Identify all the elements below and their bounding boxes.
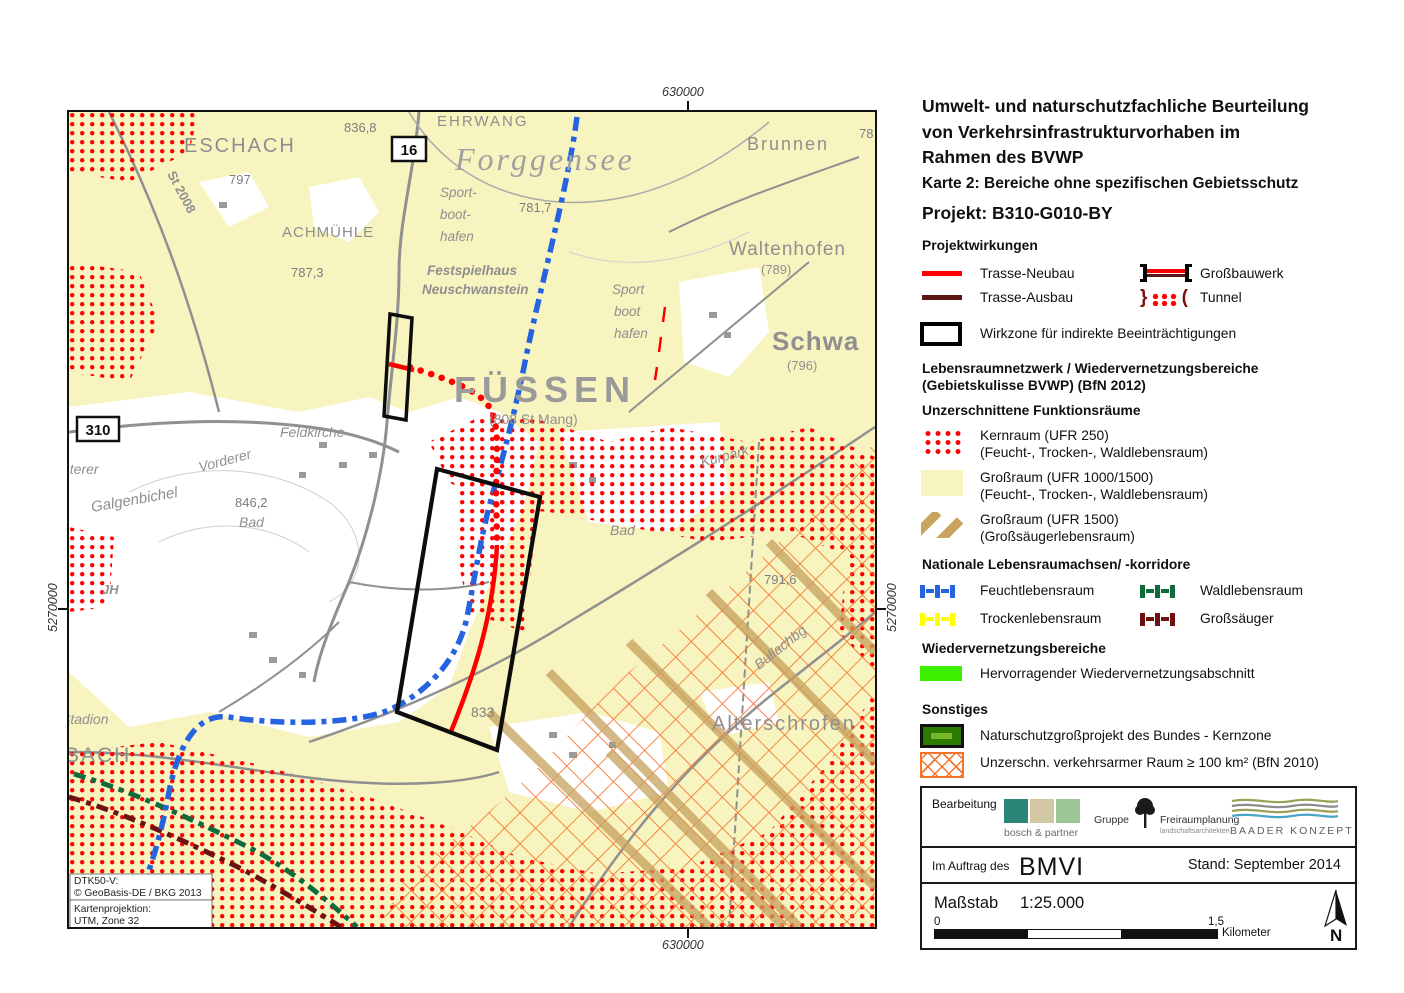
label-stadion: Stadion xyxy=(69,711,109,727)
auftrag-box: Im Auftrag des BMVI Stand: September 201… xyxy=(920,846,1357,884)
auftrag-label: Im Auftrag des xyxy=(932,859,1009,873)
label-ehrwang: EHRWANG xyxy=(437,113,529,130)
massstab-value: 1:25.000 xyxy=(1020,894,1084,913)
wald-axis-swatch xyxy=(1140,584,1186,598)
coordinate-left: 5270000 xyxy=(46,572,60,632)
tick-bottom xyxy=(687,929,689,938)
coordinate-top: 630000 xyxy=(662,85,704,99)
label-waltenhofen-elev: (789) xyxy=(761,262,791,277)
credit-line1: DTK50-V: xyxy=(74,876,118,887)
label-festspielhaus-1: Festspielhaus xyxy=(427,263,518,278)
map-canvas: 16 310 ESCHACH St 2008 797 836,8 EHRWANG… xyxy=(67,110,877,929)
bracket-left-icon xyxy=(1140,264,1147,282)
bosch-logo-text: bosch & partner xyxy=(1004,827,1078,839)
trasse-neubau-label: Trasse-Neubau xyxy=(980,266,1075,281)
bracket-right-icon xyxy=(1185,264,1192,282)
grosssaeuger-label: Großsäuger xyxy=(1200,611,1274,626)
grossraum-1000-label-1: Großraum (UFR 1000/1500) xyxy=(980,470,1153,485)
label-hinterer: nterer xyxy=(69,461,100,477)
heading-projektwirkungen: Projektwirkungen xyxy=(922,238,1038,253)
baader-waves-icon xyxy=(1230,796,1340,820)
label-alterschrofen: Alterschrofen xyxy=(712,713,856,735)
verkehrsarm-label: Unzerschn. verkehrsarmer Raum ≥ 100 km² … xyxy=(980,755,1319,770)
credit-line3: Kartenprojektion: xyxy=(74,904,151,915)
feucht-label: Feuchtlebensraum xyxy=(980,583,1094,598)
massstab-label: Maßstab xyxy=(934,894,998,913)
map-subtitle: Karte 2: Bereiche ohne spezifischen Gebi… xyxy=(922,175,1298,193)
label-eschach: ESCHACH xyxy=(184,135,296,157)
label-sport2-2: boot xyxy=(614,304,642,319)
wiedervernetzung-label: Hervorragender Wiedervernetzungsabschnit… xyxy=(980,666,1255,681)
road-shield-b310: 310 xyxy=(77,417,119,441)
label-sport1-3: hafen xyxy=(440,229,474,244)
coordinate-bottom: 630000 xyxy=(662,938,704,952)
road-shield-b310-label: 310 xyxy=(85,422,110,439)
title-line2: von Verkehrsinfrastrukturvorhaben im xyxy=(922,120,1372,146)
naturschutz-label: Naturschutzgroßprojekt des Bundes - Kern… xyxy=(980,728,1271,743)
credit-line2: © GeoBasis-DE / BKG 2013 xyxy=(74,888,202,899)
road-shield-b16-label: 16 xyxy=(401,142,418,159)
tunnel-bracket-left-icon: } xyxy=(1140,287,1147,309)
label-spot-78: 78 xyxy=(859,126,873,141)
auftrag-client: BMVI xyxy=(1019,853,1084,882)
stand-date: Stand: September 2014 xyxy=(1188,857,1341,873)
bearbeitung-box: Bearbeitung bosch & partner Gruppe Freir… xyxy=(920,786,1357,848)
bosch-logo-square2 xyxy=(1030,799,1054,823)
heading-sonstiges: Sonstiges xyxy=(922,702,988,717)
feucht-axis-swatch xyxy=(920,584,966,598)
kernraum-label-1: Kernraum (UFR 250) xyxy=(980,428,1109,443)
bearbeitung-label: Bearbeitung xyxy=(932,797,997,811)
document-title: Umwelt- und naturschutzfachliche Beurtei… xyxy=(922,94,1372,171)
grossraum-1500-swatch xyxy=(921,512,963,538)
bosch-logo-square3 xyxy=(1056,799,1080,823)
credit-line4: UTM, Zone 32 xyxy=(74,916,139,927)
label-festspielhaus-2: Neuschwanstein xyxy=(422,282,529,297)
coordinate-right: 5270000 xyxy=(885,572,899,632)
label-brunnen: Brunnen xyxy=(747,134,829,154)
kernraum-swatch xyxy=(921,428,963,454)
scale-bar xyxy=(934,929,1218,939)
north-arrow-icon xyxy=(1318,888,1354,930)
heading-wiedervernetzung: Wiedervernetzungsbereiche xyxy=(922,641,1106,656)
heading-achsen: Nationale Lebensraumachsen/ -korridore xyxy=(922,557,1190,572)
gruppe-logo-subtitle: landschaftsarchitekten xyxy=(1160,828,1230,835)
tunnel-swatch: } ( xyxy=(1140,290,1192,308)
label-bad2: Bad xyxy=(610,522,636,538)
wiedervernetzung-swatch xyxy=(920,666,962,681)
map-sheet: 16 310 ESCHACH St 2008 797 836,8 EHRWANG… xyxy=(0,0,1404,993)
grossraum-1500-label-2: (Großsäugerlebensraum) xyxy=(980,529,1135,544)
gruppe-logo-word2: Freiraumplanung xyxy=(1160,814,1239,826)
grossraum-1000-swatch xyxy=(921,470,963,496)
tree-icon xyxy=(1134,796,1156,830)
trocken-axis-swatch xyxy=(920,612,966,626)
grossbauwerk-swatch xyxy=(1140,264,1192,282)
grossraum-1500-label-1: Großraum (UFR 1500) xyxy=(980,512,1119,527)
label-spot-833: 833 xyxy=(471,704,495,720)
label-schwangau: Schwa xyxy=(772,326,859,356)
label-waltenhofen: Waltenhofen xyxy=(729,239,846,260)
label-jh: JH xyxy=(102,582,119,597)
title-line3: Rahmen des BVWP xyxy=(922,145,1372,171)
grossbauwerk-label: Großbauwerk xyxy=(1200,266,1284,281)
label-fuessen-sub: (808 St Mang) xyxy=(489,411,578,427)
label-spot-797: 797 xyxy=(229,172,251,187)
label-fuessen: FÜSSEN xyxy=(454,369,636,410)
label-sport1-2: boot- xyxy=(440,207,471,222)
naturschutz-swatch xyxy=(920,724,964,748)
wald-label: Waldlebensraum xyxy=(1200,583,1303,598)
kernraum-label-2: (Feucht-, Trocken-, Waldlebensraum) xyxy=(980,445,1208,460)
tick-top xyxy=(687,101,689,110)
trasse-ausbau-label: Trasse-Ausbau xyxy=(980,290,1073,305)
tunnel-dots-icon xyxy=(1150,293,1180,306)
label-spot-781-7: 781,7 xyxy=(519,200,552,215)
trocken-label: Trockenlebensraum xyxy=(980,611,1101,626)
label-sport2-1: Sport xyxy=(612,282,646,297)
tick-right xyxy=(877,608,886,610)
topographic-map: 16 310 ESCHACH St 2008 797 836,8 EHRWANG… xyxy=(69,112,875,927)
label-achmuehle: ACHMÜHLE xyxy=(282,223,374,241)
trasse-neubau-swatch xyxy=(922,271,962,276)
label-bad1: Bad xyxy=(239,514,265,530)
north-label: N xyxy=(1330,926,1342,946)
label-spot-791-6: 791,6 xyxy=(764,572,797,587)
trasse-ausbau-swatch xyxy=(922,295,962,300)
tunnel-bracket-right-icon: ( xyxy=(1182,287,1188,309)
map-credits: DTK50-V: © GeoBasis-DE / BKG 2013 Karten… xyxy=(70,874,212,927)
bosch-logo-square1 xyxy=(1004,799,1028,823)
project-id: Projekt: B310-G010-BY xyxy=(922,203,1113,224)
label-spot-846-2: 846,2 xyxy=(235,495,268,510)
label-spot-787-3: 787,3 xyxy=(291,265,324,280)
label-forggensee: Forggensee xyxy=(454,141,635,177)
tick-left xyxy=(58,608,67,610)
heading-netzwerk-2: (Gebietskulisse BVWP) (BfN 2012) xyxy=(922,378,1146,393)
baader-logo-text: BAADER KONZEPT xyxy=(1230,825,1354,837)
verkehrsarm-swatch xyxy=(920,752,964,778)
label-feldkirche: Feldkirche xyxy=(280,424,345,440)
gruppe-logo-word1: Gruppe xyxy=(1094,814,1129,826)
scale-unit: Kilometer xyxy=(1222,927,1271,939)
grossraum-1000-label-2: (Feucht-, Trocken-, Waldlebensraum) xyxy=(980,487,1208,502)
heading-funktionsraeume: Unzerschnittene Funktionsräume xyxy=(922,403,1141,418)
massstab-box: Maßstab 1:25.000 0 1,5 Kilometer N xyxy=(920,882,1357,950)
label-spot-836-8: 836,8 xyxy=(344,120,377,135)
grosssaeuger-axis-swatch xyxy=(1140,612,1186,626)
label-sport2-3: hafen xyxy=(614,326,648,341)
road-shield-b16: 16 xyxy=(392,137,426,161)
wirkzone-swatch xyxy=(920,322,962,346)
wirkzone-label: Wirkzone für indirekte Beeinträchtigunge… xyxy=(980,326,1236,341)
heading-netzwerk-1: Lebensraumnetzwerk / Wiedervernetzungsbe… xyxy=(922,361,1372,376)
scale-zero: 0 xyxy=(934,916,940,928)
title-line1: Umwelt- und naturschutzfachliche Beurtei… xyxy=(922,94,1372,120)
label-bach: BACH xyxy=(69,744,131,767)
label-sport1-1: Sport- xyxy=(440,185,477,200)
label-schwangau-elev: (796) xyxy=(787,358,817,373)
tunnel-label: Tunnel xyxy=(1200,290,1242,305)
